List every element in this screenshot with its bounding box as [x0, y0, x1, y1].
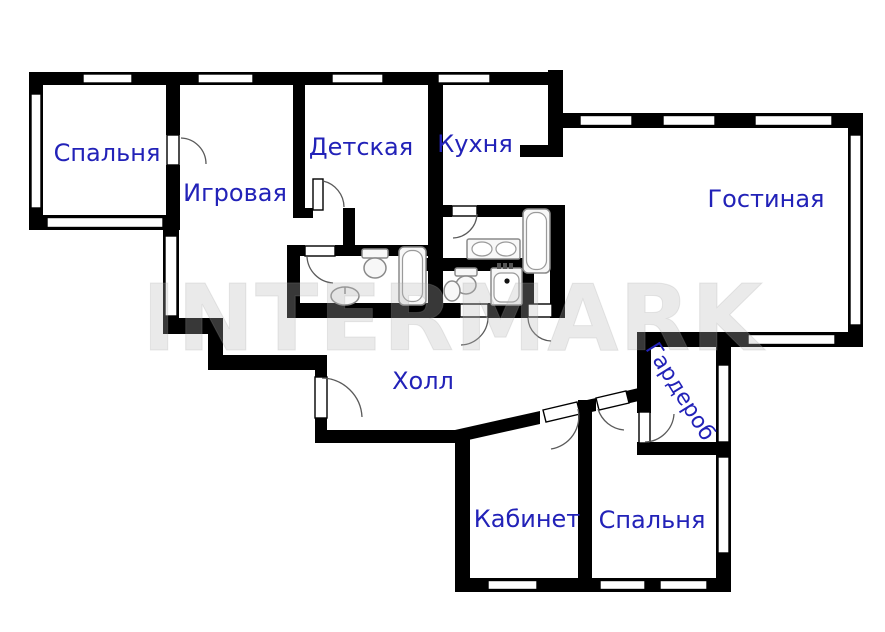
window-bedroom2-bottom-1 — [600, 581, 645, 590]
wall-kitchen-right — [548, 70, 563, 157]
window-top-kitchen — [438, 74, 490, 83]
room-label-bedroom-bottom: Спальня — [599, 506, 706, 534]
window-bedroom2-bottom-2 — [660, 581, 707, 590]
nursery-door-leaf — [313, 179, 323, 210]
floor-plan-page: Спальня Игровая Детская Кухня Гостиная Х… — [0, 0, 885, 632]
wall-bedroom1-right-a — [166, 85, 180, 135]
wall-nursery-left — [293, 72, 305, 208]
wall-nursery-door-a — [293, 208, 313, 218]
wall-bedroom1-right-b — [166, 165, 180, 215]
window-top-nursery — [332, 74, 383, 83]
window-living-top-3 — [755, 116, 832, 126]
room-label-nursery: Детская — [309, 133, 413, 161]
bathroom2-door-leaf — [452, 206, 477, 216]
wardrobe-door-leaf — [639, 412, 650, 443]
bathtub-2-inner-icon — [527, 213, 547, 270]
wall-hall-bottom — [315, 430, 470, 443]
sink-right-icon — [496, 242, 516, 256]
toilet-tank-icon — [362, 249, 388, 258]
wall-study-left — [455, 433, 470, 592]
wall-bath2-top-a — [428, 205, 452, 217]
bathroom1-door-leaf — [305, 246, 335, 256]
wall-kitchen-stub — [520, 145, 563, 157]
room-label-kitchen: Кухня — [437, 130, 513, 158]
wall-study-bedroom-divider — [578, 400, 592, 592]
sink-left-icon — [472, 242, 492, 256]
wall-bath1-top-b — [335, 245, 443, 256]
room-label-study: Кабинет — [474, 505, 581, 533]
entrance-door-leaf — [315, 377, 327, 418]
window-top-playroom — [198, 74, 253, 83]
room-label-bedroom-top-left: Спальня — [54, 139, 161, 167]
window-living-right — [850, 135, 861, 325]
window-bedroom2-right — [718, 457, 729, 553]
floor-plan: Спальня Игровая Детская Кухня Гостиная Х… — [0, 0, 885, 632]
wall-wardrobe-bottom — [637, 442, 731, 455]
window-left-bedroom1 — [31, 94, 41, 208]
window-top-bedroom1 — [83, 74, 132, 83]
room-label-living-room: Гостиная — [708, 185, 825, 213]
window-bedroom1-bottom — [47, 218, 163, 228]
window-living-top-1 — [580, 116, 632, 126]
window-living-top-2 — [663, 116, 715, 126]
room-label-playroom: Игровая — [183, 179, 287, 207]
bedroom1-door-leaf — [167, 135, 179, 165]
window-study-bottom — [488, 581, 537, 590]
watermark-text: INTERMARK — [142, 265, 766, 372]
